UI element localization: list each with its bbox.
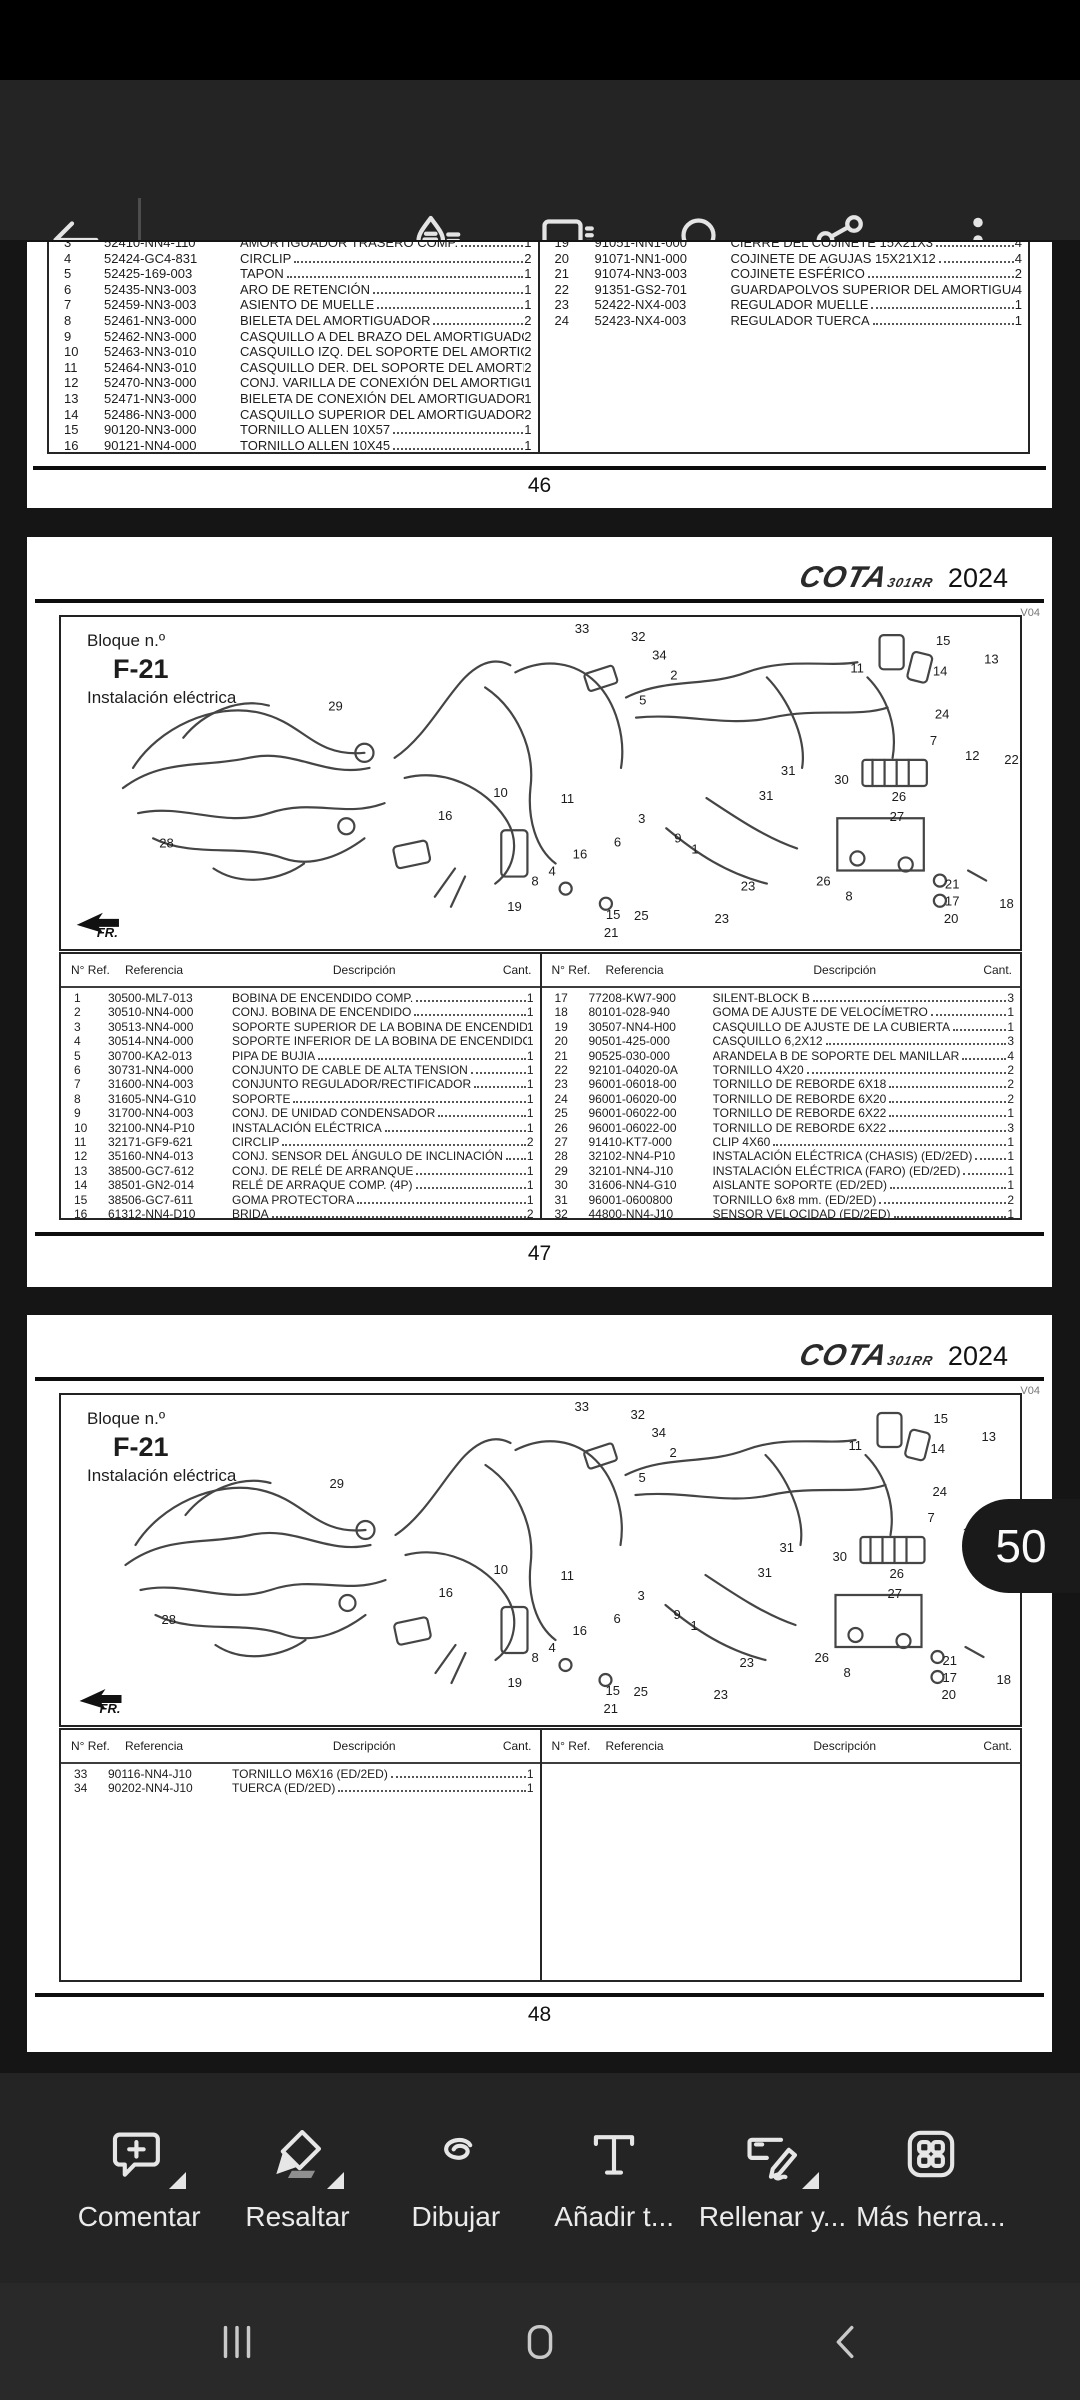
table-row: 652435-NN3-003ARO DE RETENCIÓN1 [49,282,538,298]
table-row: 3244800-NN4-J10SENSOR VELOCIDAD (ED/2ED)… [542,1207,1021,1218]
draw-icon [425,2123,487,2185]
part-code: 32171-GF9-621 [108,1135,232,1149]
ref-number: 34 [61,1781,108,1795]
table-row: 630731-NN4-000CONJUNTO DE CABLE DE ALTA … [61,1063,540,1077]
quantity: 1 [1015,297,1028,313]
dot-leader [338,1790,525,1792]
table-row: 2832102-NN4-P10INSTALACIÓN ELÉCTRICA (CH… [542,1149,1021,1163]
quantity: 1 [527,1193,540,1207]
part-code: 30514-NN4-000 [108,1034,232,1048]
ref-number: 20 [542,1034,589,1048]
table-row: 2292101-04020-0ATORNILLO 4X202 [542,1063,1021,1077]
part-description: SOPORTE [232,1092,527,1106]
table-row: 2191074-NN3-003COJINETE ESFÉRICO2 [540,266,1029,282]
part-code: 91410-KT7-000 [589,1135,713,1149]
quantity: 3 [1007,991,1020,1005]
ref-number: 13 [61,1164,108,1178]
ref-number: 5 [61,1049,108,1063]
top-toolbar [0,80,1080,240]
part-code: 31605-NN4-G10 [108,1092,232,1106]
quantity: 1 [527,1178,540,1192]
fr-label: FR. [97,925,118,940]
recents-icon[interactable] [214,2319,260,2365]
quantity: 3 [1007,1121,1020,1135]
ref-number: 14 [61,1178,108,1192]
part-description: TUERCA (ED/2ED) [232,1781,527,1795]
tool-comentar[interactable]: Comentar [60,2073,218,2283]
diagram-callout: 9 [674,830,681,845]
ref-number: 29 [542,1164,589,1178]
diagram-callout: 6 [614,1611,621,1626]
quantity: 1 [527,1121,540,1135]
table-row: 3490202-NN4-J10TUERCA (ED/2ED)1 [61,1781,540,1795]
block-title: Instalación eléctrica [87,1466,236,1486]
part-code: 91351-GS2-701 [595,282,731,298]
table-row: 1590120-NN3-000TORNILLO ALLEN 10X571 [49,422,538,438]
quantity: 2 [524,360,537,376]
part-code: 32102-NN4-P10 [589,1149,713,1163]
ref-number: 9 [49,329,104,345]
diagram-callout: 15 [606,907,621,922]
part-description: BIELETA DE CONEXIÓN DEL AMORTIGUADOR [240,391,524,407]
dot-leader [471,1072,526,1074]
highlight-icon [266,2123,328,2185]
footer-rule [35,1993,1044,1997]
diagram-callout: 23 [741,879,756,894]
home-icon[interactable] [517,2319,563,2365]
part-code: 31606-NN4-G10 [589,1178,713,1192]
tool-label: Resaltar [245,2201,349,2233]
part-code: 38501-GN2-014 [108,1178,232,1192]
tool-label: Comentar [78,2201,201,2233]
ref-number: 24 [542,1092,589,1106]
part-description: AMORTIGUADOR TRASERO COMP. [240,242,524,251]
diagram-callout: 20 [944,911,959,926]
diagram-callout: 23 [714,1687,728,1702]
diagram-callout: 27 [888,1586,902,1601]
part-code: 52425-169-003 [104,266,240,282]
diagram-callout: 23 [740,1655,754,1670]
quantity: 1 [527,1077,540,1091]
page-number: 46 [27,474,1052,498]
quantity: 4 [1015,251,1028,267]
dot-leader [931,1014,1006,1016]
part-code: 52410-NN4-110 [104,242,240,251]
table-row: 552425-169-003TAPON1 [49,266,538,282]
dot-leader [506,1158,526,1160]
quantity: 1 [1007,1178,1020,1192]
table-row: 1352471-NN3-000BIELETA DE CONEXIÓN DEL A… [49,391,538,407]
part-code: 92101-04020-0A [589,1063,713,1077]
submenu-triangle-icon [169,2172,186,2189]
ref-number: 26 [542,1121,589,1135]
dot-leader [287,276,523,278]
part-description: AISLANTE SOPORTE (ED/2ED) [713,1178,1008,1192]
ref-number: 9 [61,1106,108,1120]
ref-number: 13 [49,391,104,407]
tool-dibujar[interactable]: Dibujar [377,2073,535,2283]
ref-number: 20 [540,251,595,267]
dot-leader [438,1115,525,1117]
diagram-callout: 28 [162,1612,176,1627]
table-row: 852461-NN3-000BIELETA DEL AMORTIGUADOR2 [49,313,538,329]
dot-leader [293,1101,525,1103]
part-code: 90202-NN4-J10 [108,1781,232,1795]
diagram-callout: 5 [639,693,646,708]
diagram-callout: 31 [758,1565,772,1580]
dot-leader [889,1130,1006,1132]
part-description: TORNILLO 4X20 [713,1063,1008,1077]
ref-number: 21 [542,1049,589,1063]
fill-sign-icon [741,2123,803,2185]
back-icon[interactable] [823,2319,869,2365]
table-row: 1452486-NN3-000CASQUILLO SUPERIOR DEL AM… [49,407,538,423]
ref-number: 30 [542,1178,589,1192]
ref-number: 3 [61,1020,108,1034]
block-label: Bloque n.º [87,631,236,651]
dot-leader [773,1144,1006,1146]
tool-m-s-herra[interactable]: Más herra... [852,2073,1010,2283]
bottom-toolbar: ComentarResaltarDibujarAñadir t...Rellen… [0,2073,1080,2283]
part-description: TORNILLO DE REBORDE 6X22 [713,1121,1008,1135]
part-code: 30510-NN4-000 [108,1005,232,1019]
part-description: CONJUNTO REGULADOR/RECTIFICADOR [232,1077,527,1091]
table-row: 2791410-KT7-000CLIP 4X601 [542,1135,1021,1149]
table-row: 1052463-NN3-010CASQUILLO IZQ. DEL SOPORT… [49,344,538,360]
diagram-callout: 17 [943,1670,957,1685]
diagram-box: Bloque n.º F-21 Instalación eléctrica FR… [59,1393,1022,1727]
phone-screen: 352410-NN4-110AMORTIGUADOR TRASERO COMP.… [0,0,1080,2400]
table-row: 1252470-NN3-000CONJ. VARILLA DE CONEXIÓN… [49,375,538,391]
ref-number: 21 [540,266,595,282]
table-row: 1690121-NN4-000TORNILLO ALLEN 10X451 [49,438,538,452]
dot-leader [474,1086,526,1088]
dot-leader [939,261,1014,263]
block-label: Bloque n.º [87,1409,236,1429]
part-description: SOPORTE SUPERIOR DE LA BOBINA DE ENCENDI… [232,1020,527,1034]
quantity: 1 [527,1149,540,1163]
diagram-callout: 7 [928,1510,935,1525]
ref-number: 2 [61,1005,108,1019]
page-number: 48 [27,2003,1052,2027]
table-row: 1930507-NN4-H00CASQUILLO DE AJUSTE DE LA… [542,1020,1021,1034]
quantity: 1 [527,1034,540,1048]
brand-name: COTA301RR [795,1339,938,1373]
dot-leader [868,276,1014,278]
quantity: 1 [524,282,537,298]
part-description: TORNILLO ALLEN 10X57 [240,422,524,438]
diagram-callout: 2 [670,1445,677,1460]
dot-leader [890,1187,1006,1189]
tool-label: Rellenar y... [699,2201,846,2233]
quantity: 4 [1015,242,1028,251]
part-description: CLIP 4X60 [713,1135,1008,1149]
tool-resaltar[interactable]: Resaltar [218,2073,376,2283]
table-row: 1991051-NN1-000CIERRE DEL COJINETE 15X21… [540,242,1029,251]
part-description: CONJ. VARILLA DE CONEXIÓN DEL AMORTIGUAD… [240,375,524,391]
part-description: ARO DE RETENCIÓN [240,282,524,298]
diagram-box: Bloque n.º F-21 Instalación eléctrica FR… [59,615,1022,951]
ref-number: 18 [542,1005,589,1019]
diagram-callout: 3 [638,811,645,826]
part-code: 30731-NN4-000 [108,1063,232,1077]
diagram-callout: 6 [614,834,621,849]
part-code: 90501-425-000 [589,1034,713,1048]
table-row: 2291351-GS2-701GUARDAPOLVOS SUPERIOR DEL… [540,282,1029,298]
table-row: 2496001-06020-00TORNILLO DE REBORDE 6X20… [542,1092,1021,1106]
part-description: CONJUNTO DE CABLE DE ALTA TENSION [232,1063,527,1077]
part-code: 52470-NN3-000 [104,375,240,391]
table-row: 1152464-NN3-010CASQUILLO DER. DEL SOPORT… [49,360,538,376]
quantity: 2 [1015,266,1028,282]
part-description: RELÉ DE ARRAQUE COMP. (4P) [232,1178,527,1192]
pdf-page-48[interactable]: COTA301RR 2024 V04 Bloque n.º F-21 Insta… [27,1315,1052,2052]
dot-leader [807,1072,1007,1074]
part-code: 52471-NN3-000 [104,391,240,407]
part-code: 30507-NN4-H00 [589,1020,713,1034]
part-code: 96001-0600800 [589,1193,713,1207]
table-header: N° Ref. Referencia Descripción Cant. [61,954,540,988]
block-code: F-21 [113,654,236,685]
diagram-callout: 24 [935,707,950,722]
diagram-callout: 2 [670,667,677,682]
version-label: V04 [1020,607,1040,619]
parts-table: N° Ref. Referencia Descripción Cant. 339… [59,1728,1022,1982]
table-row: 430514-NN4-000SOPORTE INFERIOR DE LA BOB… [61,1034,540,1048]
diagram-callout: 22 [1004,752,1019,767]
diagram-callout: 8 [532,1650,539,1665]
part-description: REGULADOR MUELLE [731,297,1015,313]
table-row: 831605-NN4-G10SOPORTE1 [61,1092,540,1106]
android-nav-bar [0,2283,1080,2400]
ref-number: 23 [540,297,595,313]
diagram-callout: 17 [945,894,960,909]
quantity: 1 [1007,1149,1020,1163]
part-description: TORNILLO DE REBORDE 6X22 [713,1106,1008,1120]
part-code: 80101-028-940 [589,1005,713,1019]
diagram-callout: 15 [606,1683,620,1698]
ref-number: 6 [49,282,104,298]
part-description: CIRCLIP [232,1135,527,1149]
quantity: 1 [1007,1207,1020,1218]
table-row: 530700-KA2-013PIPA DE BUJIA1 [61,1049,540,1063]
quantity: 1 [527,991,540,1005]
quantity: 1 [524,438,537,452]
part-code: 96001-06022-00 [589,1121,713,1135]
brand-logo: COTA301RR 2024 [800,561,1008,595]
tool-a-adir-t[interactable]: Añadir t... [535,2073,693,2283]
dot-leader [873,323,1014,325]
part-description: SILENT-BLOCK B [713,991,1008,1005]
diagram-callout: 1 [691,1618,698,1633]
part-code: 32100-NN4-P10 [108,1121,232,1135]
part-description: ARANDELA B DE SOPORTE DEL MANILLAR [713,1049,1008,1063]
part-description: CONJ. BOBINA DE ENCENDIDO [232,1005,527,1019]
dot-leader [318,1058,526,1060]
ref-number: 33 [61,1767,108,1781]
diagram-callout: 3 [638,1588,645,1603]
quantity: 2 [1007,1077,1020,1091]
brand-sub: 301RR [885,1353,934,1368]
part-code: 30700-KA2-013 [108,1049,232,1063]
block-info: Bloque n.º F-21 Instalación eléctrica [87,1409,236,1486]
diagram-callout: 9 [674,1607,681,1622]
pdf-page-46[interactable]: 352410-NN4-110AMORTIGUADOR TRASERO COMP.… [27,242,1052,508]
quantity: 2 [1007,1063,1020,1077]
quantity: 1 [1007,1164,1020,1178]
submenu-triangle-icon [327,2172,344,2189]
table-row: 1880101-028-940GOMA DE AJUSTE DE VELOCÍM… [542,1005,1021,1019]
diagram-callout: 11 [850,660,864,675]
part-description: TAPON [240,266,524,282]
dot-leader [813,1000,1006,1002]
dot-leader [889,1101,1006,1103]
quantity: 1 [1007,1106,1020,1120]
ref-number: 19 [540,242,595,251]
diagram-callout: 20 [942,1687,956,1702]
part-description: CIRCLIP [240,251,524,267]
part-code: 96001-06018-00 [589,1077,713,1091]
diagram-callout: 18 [997,1672,1011,1687]
part-code: 35160-NN4-013 [108,1149,232,1163]
part-description: CONJ. DE RELÉ DE ARRANQUE [232,1164,527,1178]
diagram-callout: 31 [781,763,796,778]
quantity: 1 [527,1767,540,1781]
part-code: 61312-NN4-D10 [108,1207,232,1218]
diagram-callout: 12 [965,748,980,763]
table-row: 731600-NN4-003CONJUNTO REGULADOR/RECTIFI… [61,1077,540,1091]
part-description: CONJ. DE UNIDAD CONDENSADOR [232,1106,527,1120]
ref-number: 25 [542,1106,589,1120]
quantity: 1 [1007,1135,1020,1149]
part-description: GOMA PROTECTORA [232,1193,527,1207]
ref-number: 28 [542,1149,589,1163]
dot-leader [953,1029,1006,1031]
ref-number: 6 [61,1063,108,1077]
model-year: 2024 [948,563,1008,594]
ref-number: 10 [61,1121,108,1135]
diagram-callout: 33 [575,1399,589,1414]
table-row: 1132171-GF9-621CIRCLIP2 [61,1135,540,1149]
ref-number: 7 [49,297,104,313]
tool-label: Añadir t... [554,2201,674,2233]
table-row: 2352422-NX4-003REGULADOR MUELLE1 [540,297,1029,313]
part-description: SOPORTE INFERIOR DE LA BOBINA DE ENCENDI… [232,1034,527,1048]
part-code: 52459-NN3-003 [104,297,240,313]
part-code: 90525-030-000 [589,1049,713,1063]
quantity: 1 [527,1005,540,1019]
part-code: 52486-NN3-000 [104,407,240,423]
table-row: 1538506-GC7-611GOMA PROTECTORA1 [61,1193,540,1207]
part-description: CASQUILLO A DEL BRAZO DEL AMORTIGUADOR [240,329,524,345]
page-scrub-indicator[interactable]: 50 [962,1499,1080,1593]
pdf-page-47[interactable]: COTA301RR 2024 V04 Bloque n.º F-21 Insta… [27,537,1052,1287]
dot-leader [433,323,523,325]
diagram-callout: 34 [652,647,667,662]
quantity: 1 [1007,1020,1020,1034]
status-bar [0,0,1080,80]
quantity: 1 [527,1020,540,1034]
diagram-callout: 26 [890,1566,904,1581]
dot-leader [416,1187,526,1189]
diagram-callout: 34 [652,1425,666,1440]
part-description: BRIDA [232,1207,527,1218]
quantity: 2 [524,329,537,345]
block-info: Bloque n.º F-21 Instalación eléctrica [87,631,236,708]
ref-number: 11 [61,1135,108,1149]
table-row: 3196001-0600800TORNILLO 6x8 mm. (ED/2ED)… [542,1193,1021,1207]
ref-number: 5 [49,266,104,282]
dot-leader [294,261,523,263]
part-description: TORNILLO M6X16 (ED/2ED) [232,1767,527,1781]
fr-label: FR. [100,1701,121,1716]
diagram-callout: 14 [933,663,948,678]
part-code: 96001-06020-00 [589,1092,713,1106]
part-description: GUARDAPOLVOS SUPERIOR DEL AMORTIGUADOR [731,282,1015,298]
ref-number: 15 [49,422,104,438]
quantity: 3 [1007,1034,1020,1048]
page-number: 47 [27,1242,1052,1266]
table-row: 752459-NN3-003ASIENTO DE MUELLE1 [49,297,538,313]
quantity: 1 [527,1781,540,1795]
table-row: 452424-GC4-831CIRCLIP2 [49,251,538,267]
table-row: 3390116-NN4-J10TORNILLO M6X16 (ED/2ED)1 [61,1767,540,1781]
part-description: TORNILLO DE REBORDE 6X18 [713,1077,1008,1091]
tool-rellenar-y[interactable]: Rellenar y... [693,2073,851,2283]
table-row: 3031606-NN4-G10AISLANTE SOPORTE (ED/2ED)… [542,1178,1021,1192]
part-code: 96001-06022-00 [589,1106,713,1120]
diagram-callout: 8 [531,874,538,889]
quantity: 1 [527,1164,540,1178]
part-description: CASQUILLO IZQ. DEL SOPORTE DEL AMORTIGUA… [240,344,524,360]
dot-leader [879,1202,1006,1204]
diagram-callout: 21 [943,1653,957,1668]
part-description: ASIENTO DE MUELLE [240,297,524,313]
diagram-callout: 16 [573,1623,587,1638]
add-text-icon [583,2123,645,2185]
model-year: 2024 [948,1341,1008,1372]
quantity: 1 [524,422,537,438]
dot-leader [416,1000,526,1002]
part-description: INSTALACIÓN ELÉCTRICA (FARO) (ED/2ED) [713,1164,1008,1178]
part-description: COJINETE ESFÉRICO [731,266,1015,282]
table-row: 1032100-NN4-P10INSTALACIÓN ELÉCTRICA1 [61,1121,540,1135]
brand-logo: COTA301RR 2024 [800,1339,1008,1373]
dot-leader [936,245,1014,247]
diagram-callout: 32 [631,629,646,644]
diagram-callout: 16 [438,808,453,823]
table-row: 2090501-425-000CASQUILLO 6,2X123 [542,1034,1021,1048]
table-row: 2596001-06022-00TORNILLO DE REBORDE 6X22… [542,1106,1021,1120]
diagram-callout: 5 [639,1470,646,1485]
ref-number: 4 [61,1034,108,1048]
diagram-callout: 19 [508,1675,522,1690]
table-row: 352410-NN4-110AMORTIGUADOR TRASERO COMP.… [49,242,538,251]
table-row: 1338500-GC7-612CONJ. DE RELÉ DE ARRANQUE… [61,1164,540,1178]
quantity: 2 [524,251,537,267]
dot-leader [889,1115,1006,1117]
diagram-callout: 4 [549,1640,556,1655]
footer-rule [33,466,1046,470]
dot-leader [416,1173,525,1175]
parts-table: N° Ref. Referencia Descripción Cant. 130… [59,952,1022,1220]
dot-leader [826,1043,1007,1045]
diagram-callout: 32 [631,1407,645,1422]
dot-leader [272,1216,526,1218]
table-row: 2696001-06022-00TORNILLO DE REBORDE 6X22… [542,1121,1021,1135]
pdf-viewer[interactable]: 352410-NN4-110AMORTIGUADOR TRASERO COMP.… [0,240,1080,2073]
table-header: N° Ref. Referencia Descripción Cant. [542,1730,1021,1764]
